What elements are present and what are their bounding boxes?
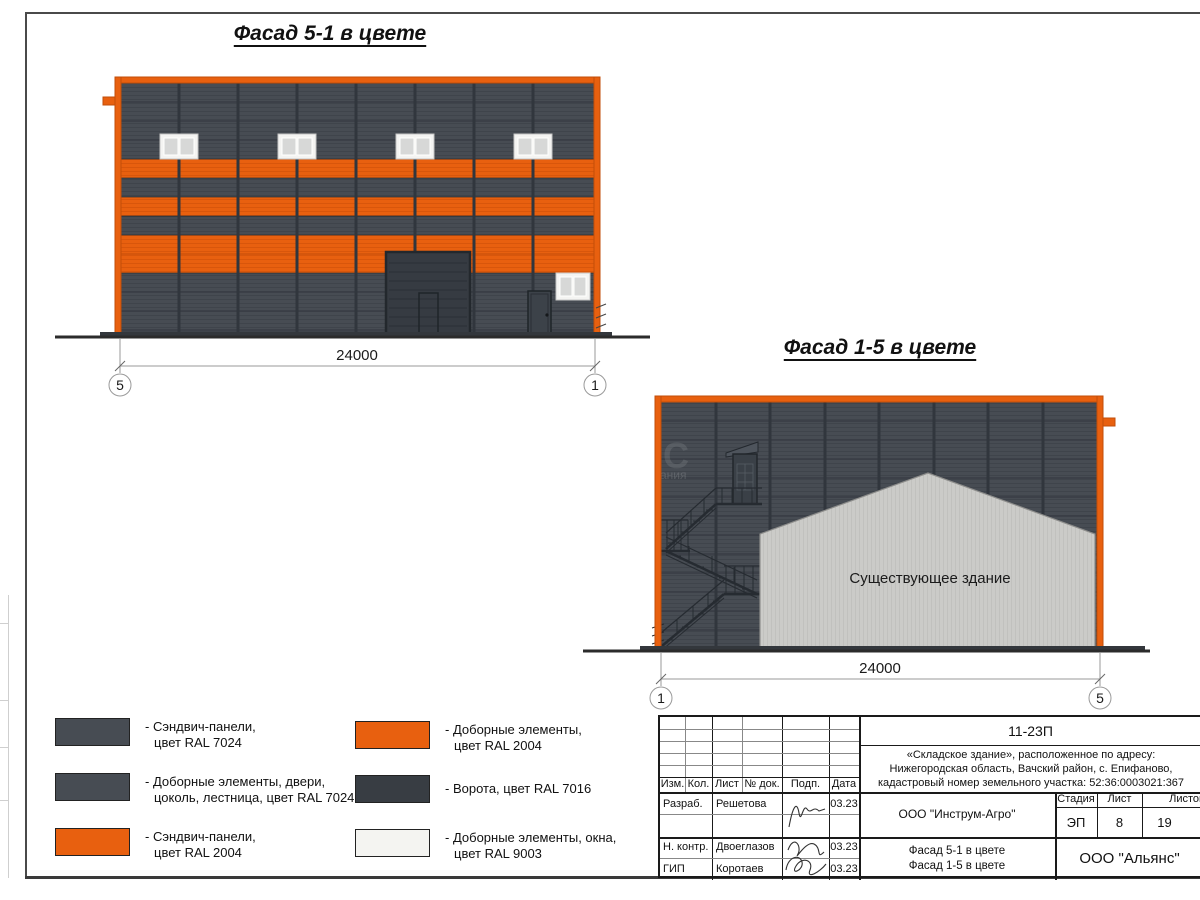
frame-left [25, 12, 27, 878]
facade51-plinth [100, 332, 612, 336]
tb-sheets-value: 19 [1142, 807, 1187, 837]
facade51-gate [386, 252, 470, 336]
facade51-door [528, 291, 551, 336]
tb-sheet-header: Лист [1097, 792, 1142, 807]
facade15-existing-label: Существующее здание [849, 570, 1010, 587]
facade51-dimension-text: 24000 [336, 347, 378, 364]
tb-stage-value: ЭП [1055, 807, 1097, 837]
facade-1-5-title: Фасад 1-5 в цвете [770, 336, 990, 360]
title-block: Изм. Кол. Лист № док. Подп. Дата Разраб.… [658, 715, 1200, 878]
facade15-watermark-small: ания [660, 468, 687, 482]
tb-header-izm: Изм. [660, 777, 685, 792]
legend-label: - Ворота, цвет RAL 7016 [445, 781, 591, 797]
tb-date-ncontrol: 03.23 [829, 837, 859, 858]
margin-divider [0, 623, 8, 624]
tb-header-doc: № док. [742, 777, 782, 792]
facade15-axis-left: 1 [650, 687, 672, 709]
drawing-sheet: Фасад 5-1 в цвете [0, 0, 1200, 900]
legend-swatch-ral2004-panels [55, 828, 130, 856]
facade15-axis-right: 5 [1089, 687, 1111, 709]
tb-sheet-value: 8 [1097, 807, 1142, 837]
facade15-dimension-text: 24000 [859, 660, 901, 677]
margin-divider [0, 747, 8, 748]
facade51-small-window [556, 273, 590, 300]
tb-header-kol: Кол. [685, 777, 712, 792]
legend-label: - Сэндвич-панели,цвет RAL 7024 [145, 719, 256, 751]
tb-date-developer: 03.23 [829, 794, 859, 814]
tb-name-developer: Решетова [716, 794, 780, 814]
tb-sheets-header: Листов [1142, 792, 1200, 807]
tb-org: ООО "Альянс" [1057, 837, 1200, 880]
tb-signature-ncontrol-gip [780, 830, 832, 880]
legend-label: - Доборные элементы,цвет RAL 2004 [445, 722, 582, 754]
margin-divider [0, 800, 8, 801]
tb-role-ncontrol: Н. контр. [663, 837, 713, 858]
tb-date-gip: 03.23 [829, 858, 859, 880]
legend-swatch-ral7024-elements [55, 773, 130, 801]
tb-customer: ООО "Инструм-Агро" [859, 792, 1055, 837]
svg-text:5: 5 [116, 377, 124, 393]
legend-label: - Доборные элементы, окна,цвет RAL 9003 [445, 830, 616, 862]
margin-divider [0, 700, 8, 701]
tb-signature-developer [783, 793, 829, 835]
tb-header-sign: Подп. [782, 777, 829, 792]
svg-text:5: 5 [1096, 690, 1104, 706]
legend-label: - Сэндвич-панели,цвет RAL 2004 [145, 829, 256, 861]
legend-swatch-ral9003-windows [355, 829, 430, 857]
margin-column-line [8, 595, 9, 878]
tb-name-gip: Коротаев [716, 858, 780, 880]
tb-stage-header: Стадия [1055, 792, 1097, 807]
facade-5-1-drawing: 24000 5 1 [40, 60, 660, 410]
legend-label: - Доборные элементы, двери,цоколь, лестн… [145, 774, 354, 806]
legend-swatch-ral7024-panels [55, 718, 130, 746]
tb-role-gip: ГИП [663, 858, 713, 880]
tb-header-list: Лист [712, 777, 742, 792]
frame-top [25, 12, 1200, 14]
facade-1-5-drawing: С ания [570, 370, 1170, 715]
legend-swatch-ral7016-gates [355, 775, 430, 803]
tb-role-developer: Разраб. [663, 794, 713, 814]
tb-content-title: Фасад 5-1 в цвете Фасад 1-5 в цвете [859, 837, 1055, 880]
facade51-axis-left: 5 [109, 374, 131, 396]
tb-name-ncontrol: Двоеглазов [716, 837, 780, 858]
svg-text:1: 1 [657, 690, 665, 706]
tb-doc-number: 11-23П [859, 717, 1200, 745]
facade15-plinth [640, 646, 1145, 650]
tb-header-date: Дата [829, 777, 859, 792]
legend-swatch-ral2004-elements [355, 721, 430, 749]
tb-project-address: «Складское здание», расположенное по адр… [865, 745, 1197, 792]
facade-5-1-title: Фасад 5-1 в цвете [210, 22, 450, 46]
